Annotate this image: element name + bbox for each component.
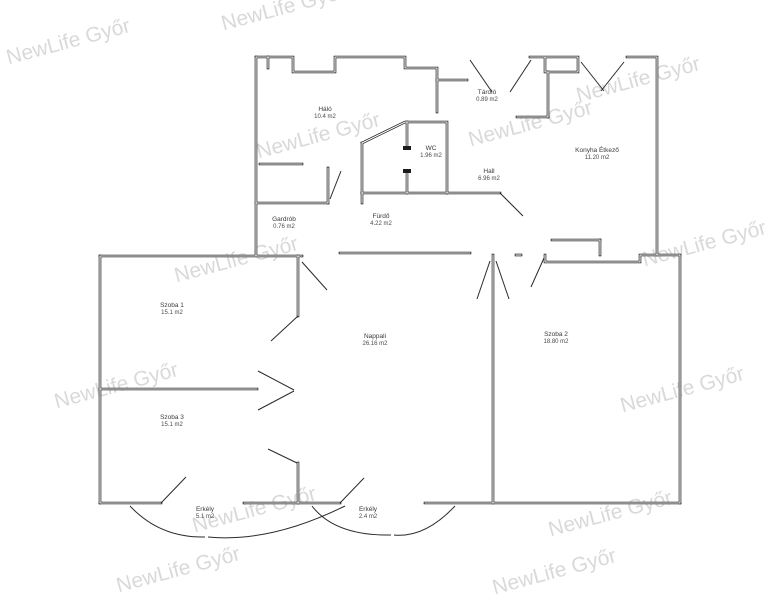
door-jamb — [403, 169, 411, 173]
door-swing — [496, 261, 509, 299]
room-area-label: 15.1 m2 — [161, 310, 183, 316]
room-area-label: 10.4 m2 — [314, 114, 336, 120]
door-swing — [330, 171, 341, 199]
watermark-text: NewLife Győr — [574, 52, 703, 107]
floor-plan-page: NewLife GyőrNewLife GyőrNewLife GyőrNewL… — [0, 0, 782, 600]
room-area-label: 0.89 m2 — [476, 97, 498, 103]
room-label: Konyha Étkező — [575, 145, 619, 154]
door-swing — [531, 258, 544, 287]
room-label: Gardrób — [272, 216, 296, 223]
door-swing — [268, 449, 297, 463]
room-label: Tároló — [478, 89, 497, 96]
room-label: Fürdő — [373, 213, 390, 220]
room-label: Szoba 2 — [544, 331, 568, 338]
door-jamb — [403, 146, 411, 150]
room-label: WC — [426, 145, 437, 152]
wall — [256, 57, 467, 80]
watermark-text: NewLife Győr — [219, 0, 348, 35]
room-area-label: 1.96 m2 — [420, 153, 442, 159]
wall — [545, 255, 680, 503]
room-area-label: 18.80 m2 — [543, 339, 569, 345]
door-swing — [510, 60, 531, 92]
watermark-text: NewLife Győr — [640, 216, 769, 271]
watermark-text: NewLife Győr — [490, 544, 619, 599]
room-label: Háló — [318, 106, 332, 113]
wall — [530, 57, 578, 72]
room-area-label: 5.1 m2 — [196, 514, 215, 520]
room-area-label: 26.16 m2 — [362, 341, 388, 347]
door-swing — [340, 478, 364, 503]
room-area-label: 15.1 m2 — [161, 422, 183, 428]
room-label: Szoba 1 — [160, 302, 184, 309]
room-area-label: 6.96 m2 — [478, 176, 500, 182]
room-label: Erkély — [196, 506, 215, 513]
watermark-text: NewLife Győr — [618, 362, 747, 417]
floor-plan-svg: NewLife GyőrNewLife GyőrNewLife GyőrNewL… — [0, 0, 782, 600]
room-label: Hall — [483, 168, 495, 175]
watermark-text: NewLife Győr — [546, 486, 675, 541]
door-swing — [161, 477, 186, 503]
room-area-label: 2.4 m2 — [359, 514, 378, 520]
door-swing — [477, 261, 490, 299]
room-label: Nappali — [364, 333, 386, 340]
room-area-label: 0.76 m2 — [273, 224, 295, 230]
door-swing — [500, 193, 523, 216]
door-swing — [470, 60, 492, 92]
room-area-label: 11.20 m2 — [585, 155, 610, 161]
room-labels-layer: Háló10.4 m2Tároló0.89 m2WC1.96 m2Hall6.9… — [160, 89, 619, 520]
room-label: Szoba 3 — [160, 414, 184, 421]
wall — [530, 57, 578, 72]
watermark-text: NewLife Győr — [466, 96, 595, 151]
door-arc — [312, 506, 391, 535]
room-area-label: 4.22 m2 — [370, 221, 392, 227]
wall — [545, 255, 680, 503]
watermark-text: NewLife Győr — [52, 358, 181, 413]
door-swing — [302, 262, 327, 290]
watermark-text: NewLife Győr — [172, 232, 301, 287]
room-label: Erkély — [359, 506, 378, 513]
door-swing — [271, 316, 298, 341]
door-arc — [394, 506, 455, 535]
watermark-text: NewLife Győr — [4, 14, 133, 69]
watermark-layer: NewLife GyőrNewLife GyőrNewLife GyőrNewL… — [4, 0, 769, 599]
watermark-text: NewLife Győr — [114, 542, 243, 597]
door-swing — [258, 371, 294, 390]
door-swing — [258, 391, 294, 410]
